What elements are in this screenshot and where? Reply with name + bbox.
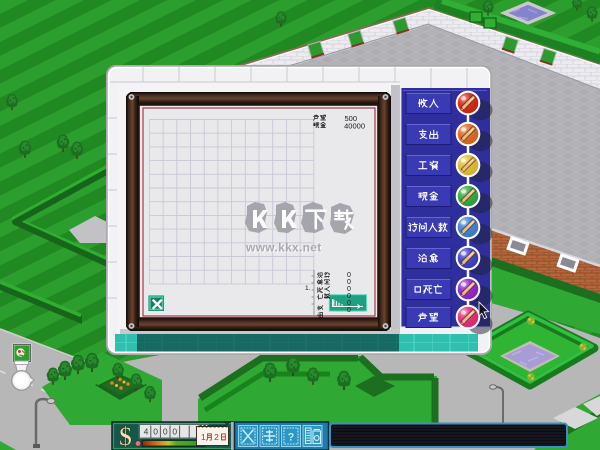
svg-text:4: 4 (144, 427, 149, 437)
svg-text:0: 0 (347, 272, 351, 279)
svg-text:0: 0 (347, 286, 351, 293)
svg-text:0: 0 (347, 293, 351, 300)
svg-text:$: $ (119, 422, 132, 450)
svg-text:0: 0 (347, 307, 351, 314)
svg-text:40000: 40000 (344, 122, 365, 131)
svg-text:2: 2 (214, 432, 219, 442)
svg-text:0: 0 (172, 427, 177, 437)
svg-text:0: 0 (347, 300, 351, 307)
svg-text:0: 0 (163, 427, 168, 437)
svg-text:www.kkx.net: www.kkx.net (245, 241, 322, 255)
svg-text:0: 0 (347, 279, 351, 286)
svg-text:?: ? (288, 432, 295, 444)
svg-text:1.: 1. (305, 285, 311, 292)
svg-text:0: 0 (153, 427, 158, 437)
svg-text:1: 1 (201, 432, 206, 442)
